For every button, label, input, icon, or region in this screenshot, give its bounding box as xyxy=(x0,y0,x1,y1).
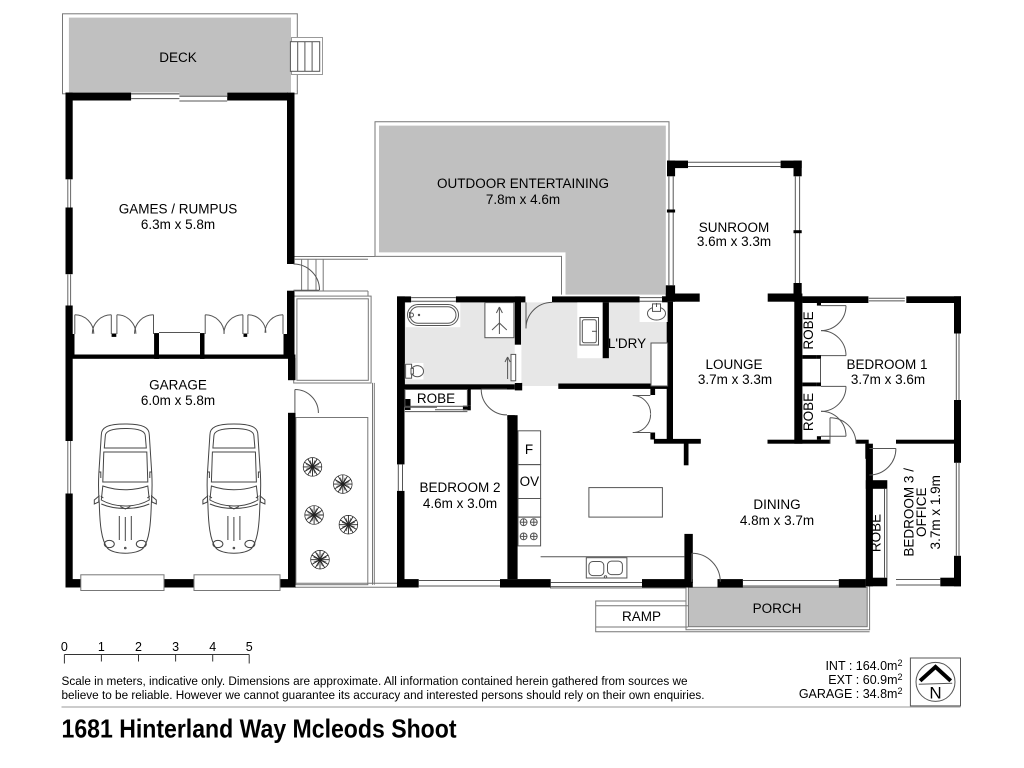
svg-text:5: 5 xyxy=(246,640,253,654)
svg-text:3.7m x 1.9m: 3.7m x 1.9m xyxy=(928,475,943,549)
svg-text:OUTDOOR ENTERTAINING: OUTDOOR ENTERTAINING xyxy=(437,176,609,191)
svg-text:DECK: DECK xyxy=(159,50,197,65)
svg-text:BEDROOM 2: BEDROOM 2 xyxy=(419,480,500,495)
svg-text:OFFICE: OFFICE xyxy=(914,488,929,538)
svg-text:2: 2 xyxy=(135,640,142,654)
svg-text:Scale in meters, indicative on: Scale in meters, indicative only. Dimens… xyxy=(62,674,688,688)
svg-text:6.0m x 5.8m: 6.0m x 5.8m xyxy=(141,393,215,408)
svg-text:PORCH: PORCH xyxy=(753,601,802,616)
svg-text:L'DRY: L'DRY xyxy=(608,336,646,351)
svg-text:DINING: DINING xyxy=(753,497,800,512)
svg-text:SUNROOM: SUNROOM xyxy=(699,220,770,235)
svg-text:4.8m x 3.7m: 4.8m x 3.7m xyxy=(740,513,814,528)
svg-text:EXT : 60.9m2: EXT : 60.9m2 xyxy=(828,672,902,687)
svg-text:0: 0 xyxy=(61,640,68,654)
svg-text:BEDROOM 1: BEDROOM 1 xyxy=(846,357,927,372)
svg-text:7.8m x 4.6m: 7.8m x 4.6m xyxy=(486,192,560,207)
svg-text:1681 Hinterland Way Mcleods Sh: 1681 Hinterland Way Mcleods Shoot xyxy=(62,714,457,744)
svg-text:3.7m x 3.3m: 3.7m x 3.3m xyxy=(698,372,772,387)
svg-text:GAMES / RUMPUS: GAMES / RUMPUS xyxy=(119,202,238,217)
svg-text:1: 1 xyxy=(98,640,105,654)
svg-text:GARAGE: GARAGE xyxy=(149,377,207,392)
svg-text:GARAGE : 34.8m2: GARAGE : 34.8m2 xyxy=(799,686,903,701)
svg-text:N: N xyxy=(929,684,941,703)
svg-text:believe to be reliable. Howeve: believe to be reliable. However we canno… xyxy=(62,688,705,702)
svg-text:ROBE: ROBE xyxy=(417,391,455,406)
svg-text:LOUNGE: LOUNGE xyxy=(705,357,762,372)
svg-text:6.3m x 5.8m: 6.3m x 5.8m xyxy=(141,217,215,232)
svg-text:3: 3 xyxy=(172,640,179,654)
svg-text:F: F xyxy=(525,442,533,457)
svg-text:4: 4 xyxy=(209,640,216,654)
svg-text:INT : 164.0m2: INT : 164.0m2 xyxy=(825,658,902,673)
svg-text:3.7m x 3.6m: 3.7m x 3.6m xyxy=(851,372,925,387)
svg-text:RAMP: RAMP xyxy=(622,609,661,624)
svg-text:ROBE: ROBE xyxy=(801,311,816,349)
svg-text:3.6m x 3.3m: 3.6m x 3.3m xyxy=(697,234,771,249)
svg-text:OV: OV xyxy=(520,474,540,489)
svg-text:4.6m x 3.0m: 4.6m x 3.0m xyxy=(423,496,497,511)
svg-text:ROBE: ROBE xyxy=(801,393,816,431)
svg-text:ROBE: ROBE xyxy=(869,514,884,552)
